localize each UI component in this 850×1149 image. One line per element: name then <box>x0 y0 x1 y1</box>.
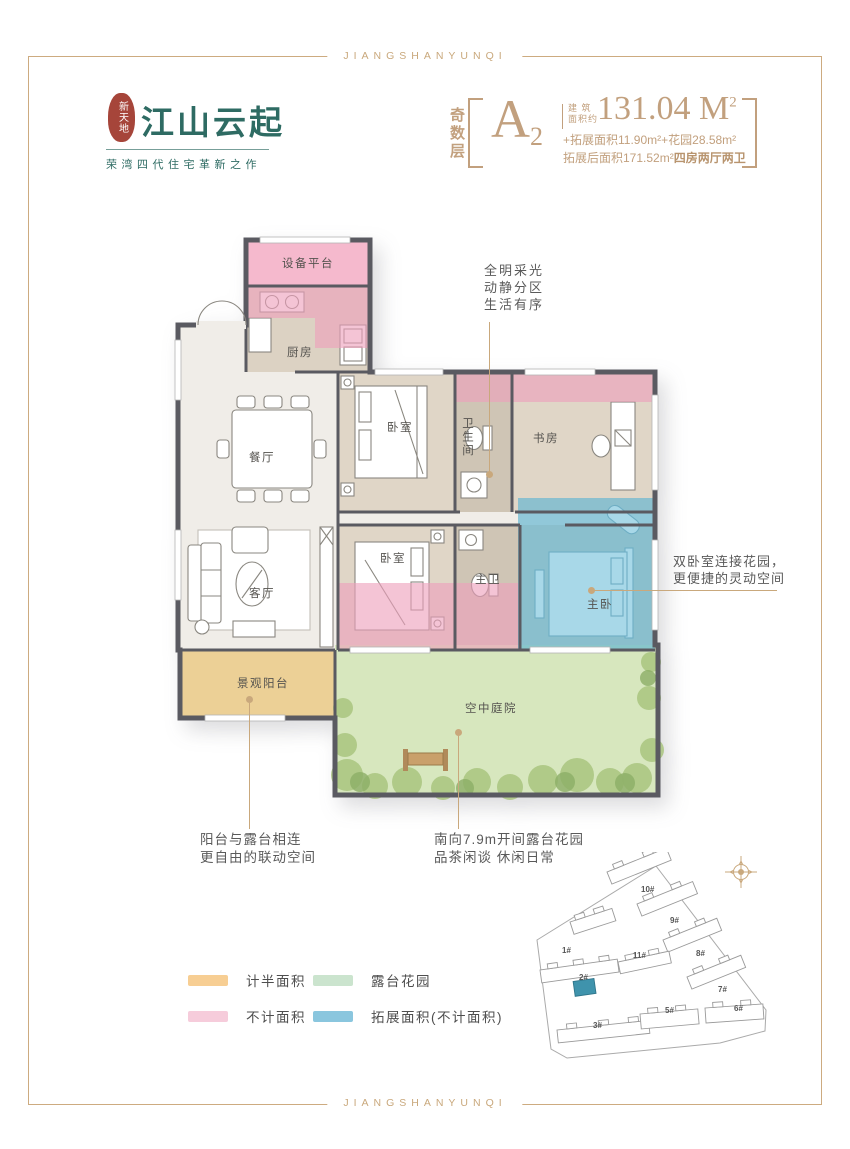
layout-type: 四房两厅两卫 <box>674 151 746 165</box>
svg-text:11#: 11# <box>633 951 646 960</box>
svg-text:8#: 8# <box>696 949 705 958</box>
svg-text:1#: 1# <box>562 946 571 955</box>
brand-seal-icon: 新天地 <box>108 93 135 142</box>
room-label-study: 书房 <box>533 430 559 446</box>
room-label-balcony: 景观阳台 <box>237 675 289 691</box>
svg-text:10#: 10# <box>641 885 655 894</box>
svg-text:6#: 6# <box>734 1004 743 1013</box>
leader-dot-balcony <box>246 696 253 703</box>
brochure-page: JIANGSHANYUNQI JIANGSHANYUNQI 新天地 江山云起 荣… <box>0 0 850 1149</box>
room-label-master-bath: 主卫 <box>475 571 501 587</box>
brand-name: 江山云起 <box>141 96 331 144</box>
room-label-dining: 餐厅 <box>249 449 275 465</box>
compass-icon <box>725 856 757 888</box>
brand-divider <box>106 149 269 150</box>
entry-door-icon <box>196 301 246 329</box>
spec-bracket-left <box>468 98 483 168</box>
legend-swatch-half-area <box>188 975 228 986</box>
leader-line-top <box>489 322 490 472</box>
frame-bottom-title: JIANGSHANYUNQI <box>327 1097 522 1109</box>
legend-label-extension-area: 拓展面积(不计面积) <box>371 1006 503 1026</box>
brand-seal-text: 新天地 <box>117 101 127 134</box>
legend-swatch-uncounted-area <box>188 1011 228 1022</box>
svg-text:5#: 5# <box>665 1006 674 1015</box>
svg-text:7#: 7# <box>718 985 727 994</box>
legend-label-half-area: 计半面积 <box>246 970 306 990</box>
room-label-bedroom-1: 卧室 <box>387 419 413 435</box>
legend-swatch-terrace-garden <box>313 975 353 986</box>
area-label: 建 筑 面积约 <box>568 103 598 125</box>
room-label-equipment-platform: 设备平台 <box>282 255 334 271</box>
room-label-living: 客厅 <box>249 585 275 601</box>
unit-name: A2 <box>491 92 543 150</box>
spec-bracket-right <box>742 98 757 168</box>
spec-divider <box>562 104 563 129</box>
floor-type-label: 奇数层 <box>446 107 467 161</box>
legend-swatch-extension-area <box>313 1011 353 1022</box>
room-label-bathroom: 卫生间 <box>459 417 475 458</box>
leader-line-courtyard <box>458 736 459 829</box>
room-label-bedroom-2: 卧室 <box>380 550 406 566</box>
leader-dot-courtyard <box>455 729 462 736</box>
annotation-balcony-terrace: 阳台与露台相连 更自由的联动空间 <box>200 831 316 867</box>
annotation-garden-bedrooms: 双卧室连接花园， 更便捷的灵动空间 <box>673 553 785 587</box>
area-sup: 2 <box>729 95 737 111</box>
svg-text:9#: 9# <box>670 916 679 925</box>
site-plan: 1# 2# 3# 5# 6# 7# 8# 9# 10# 11# <box>515 852 790 1087</box>
annotation-lighting: 全明采光 动静分区 生活有序 <box>484 262 544 313</box>
room-label-master-bedroom: 主卧 <box>587 596 613 612</box>
frame-top-title: JIANGSHANYUNQI <box>327 50 522 62</box>
legend-label-uncounted-area: 不计面积 <box>246 1006 306 1026</box>
area-value: 131.04 M2 <box>597 92 737 126</box>
room-label-kitchen: 厨房 <box>287 344 313 360</box>
total-area-line: 拓展后面积171.52m²四房两厅两卫 <box>563 149 746 166</box>
leader-line-right <box>592 590 777 591</box>
brand-tagline: 荣湾四代住宅革新之作 <box>106 156 261 172</box>
extension-detail-line: +拓展面积11.90m²+花园28.58m² <box>563 131 736 148</box>
legend-label-terrace-garden: 露台花园 <box>371 970 431 990</box>
leader-line-balcony <box>249 703 250 829</box>
svg-text:3#: 3# <box>593 1021 602 1030</box>
unit-sub: 2 <box>530 122 543 151</box>
floor-plan <box>165 230 685 800</box>
leader-dot-top <box>486 471 493 478</box>
room-label-courtyard: 空中庭院 <box>465 700 517 716</box>
svg-text:2#: 2# <box>579 973 588 982</box>
